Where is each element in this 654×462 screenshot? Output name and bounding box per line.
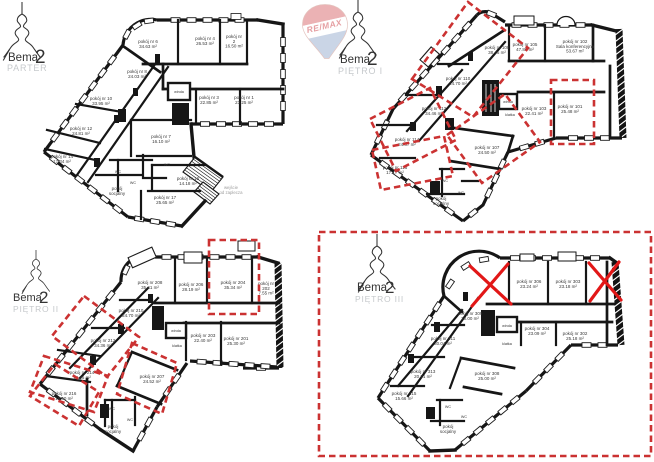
svg-text:18.60 m²: 18.60 m² bbox=[55, 396, 73, 401]
svg-text:24.70 m²: 24.70 m² bbox=[449, 81, 467, 86]
svg-text:16.10 m²: 16.10 m² bbox=[152, 139, 170, 144]
svg-text:WC: WC bbox=[461, 415, 467, 419]
svg-text:16.50 m²: 16.50 m² bbox=[225, 44, 243, 49]
svg-text:24.52 m²: 24.52 m² bbox=[143, 379, 161, 384]
svg-text:PIĘTRO II: PIĘTRO II bbox=[13, 304, 59, 314]
svg-text:25.18 m²: 25.18 m² bbox=[566, 336, 584, 341]
svg-text:17.34 m²: 17.34 m² bbox=[53, 159, 71, 164]
svg-text:PIĘTRO I: PIĘTRO I bbox=[338, 66, 383, 76]
svg-text:WC: WC bbox=[164, 163, 170, 167]
svg-text:WC: WC bbox=[109, 407, 115, 411]
svg-text:25.65 m²: 25.65 m² bbox=[156, 200, 174, 205]
svg-text:47.80 m²: 47.80 m² bbox=[516, 47, 534, 52]
svg-text:35.41 m²: 35.41 m² bbox=[141, 285, 159, 290]
svg-text:WC: WC bbox=[115, 170, 121, 174]
svg-text:14.18 m²: 14.18 m² bbox=[179, 181, 197, 186]
svg-text:winda: winda bbox=[171, 329, 182, 333]
svg-text:socjalny: socjalny bbox=[433, 201, 450, 206]
svg-text:25.48 m²: 25.48 m² bbox=[561, 109, 579, 114]
svg-text:23.09 m²: 23.09 m² bbox=[528, 331, 546, 336]
svg-text:53.67 m²: 53.67 m² bbox=[566, 49, 584, 54]
svg-text:25.30 m²: 25.30 m² bbox=[227, 341, 245, 346]
svg-text:socjalny: socjalny bbox=[109, 191, 126, 196]
svg-text:Bema: Bema bbox=[357, 282, 388, 294]
svg-text:klatka: klatka bbox=[505, 113, 516, 117]
svg-text:30.04 m²: 30.04 m² bbox=[434, 341, 452, 346]
svg-text:klatka: klatka bbox=[172, 344, 183, 348]
svg-text:PARTER: PARTER bbox=[7, 63, 47, 73]
svg-text:22.85 m²: 22.85 m² bbox=[200, 100, 218, 105]
svg-text:WC: WC bbox=[442, 179, 448, 183]
svg-text:34.63 m²: 34.63 m² bbox=[139, 44, 157, 49]
svg-text:28.19 m²: 28.19 m² bbox=[182, 287, 200, 292]
svg-text:23.18 m²: 23.18 m² bbox=[559, 284, 577, 289]
svg-text:34.36 m²: 34.36 m² bbox=[94, 343, 112, 348]
svg-text:20.00 m²: 20.00 m² bbox=[461, 316, 479, 321]
svg-text:34.46 m²: 34.46 m² bbox=[425, 111, 443, 116]
svg-text:23.24 m²: 23.24 m² bbox=[520, 284, 538, 289]
svg-text:20.31 m²: 20.31 m² bbox=[414, 374, 432, 379]
svg-text:22.40 m²: 22.40 m² bbox=[194, 338, 212, 343]
svg-text:24.70 m²: 24.70 m² bbox=[122, 313, 140, 318]
svg-text:22.41 m²: 22.41 m² bbox=[525, 111, 543, 116]
svg-text:35.34 m²: 35.34 m² bbox=[224, 285, 242, 290]
svg-text:23.25 m²: 23.25 m² bbox=[235, 100, 253, 105]
svg-text:socjalny: socjalny bbox=[105, 429, 122, 434]
svg-text:24.81 m²: 24.81 m² bbox=[72, 131, 90, 136]
svg-text:7.55 m²: 7.55 m² bbox=[258, 291, 274, 296]
svg-text:socjalny: socjalny bbox=[440, 429, 457, 434]
svg-text:24.50 m²: 24.50 m² bbox=[478, 150, 496, 155]
svg-text:od zaplecza: od zaplecza bbox=[220, 190, 244, 195]
svg-text:15.66 m²: 15.66 m² bbox=[395, 396, 413, 401]
svg-text:38.46 m²: 38.46 m² bbox=[488, 50, 506, 55]
svg-text:WC: WC bbox=[445, 405, 451, 409]
svg-text:klatka: klatka bbox=[502, 342, 513, 346]
svg-text:24.03 m²: 24.03 m² bbox=[128, 74, 146, 79]
svg-text:winda: winda bbox=[174, 90, 185, 94]
svg-text:PIĘTRO III: PIĘTRO III bbox=[355, 294, 404, 304]
svg-text:33.95 m²: 33.95 m² bbox=[92, 101, 110, 106]
svg-text:26.53 m²: 26.53 m² bbox=[196, 41, 214, 46]
svg-text:WC: WC bbox=[130, 181, 136, 185]
svg-text:WC: WC bbox=[458, 191, 464, 195]
svg-text:WC: WC bbox=[127, 418, 133, 422]
svg-text:25.00 m²: 25.00 m² bbox=[478, 376, 496, 381]
svg-text:winda: winda bbox=[502, 324, 513, 328]
